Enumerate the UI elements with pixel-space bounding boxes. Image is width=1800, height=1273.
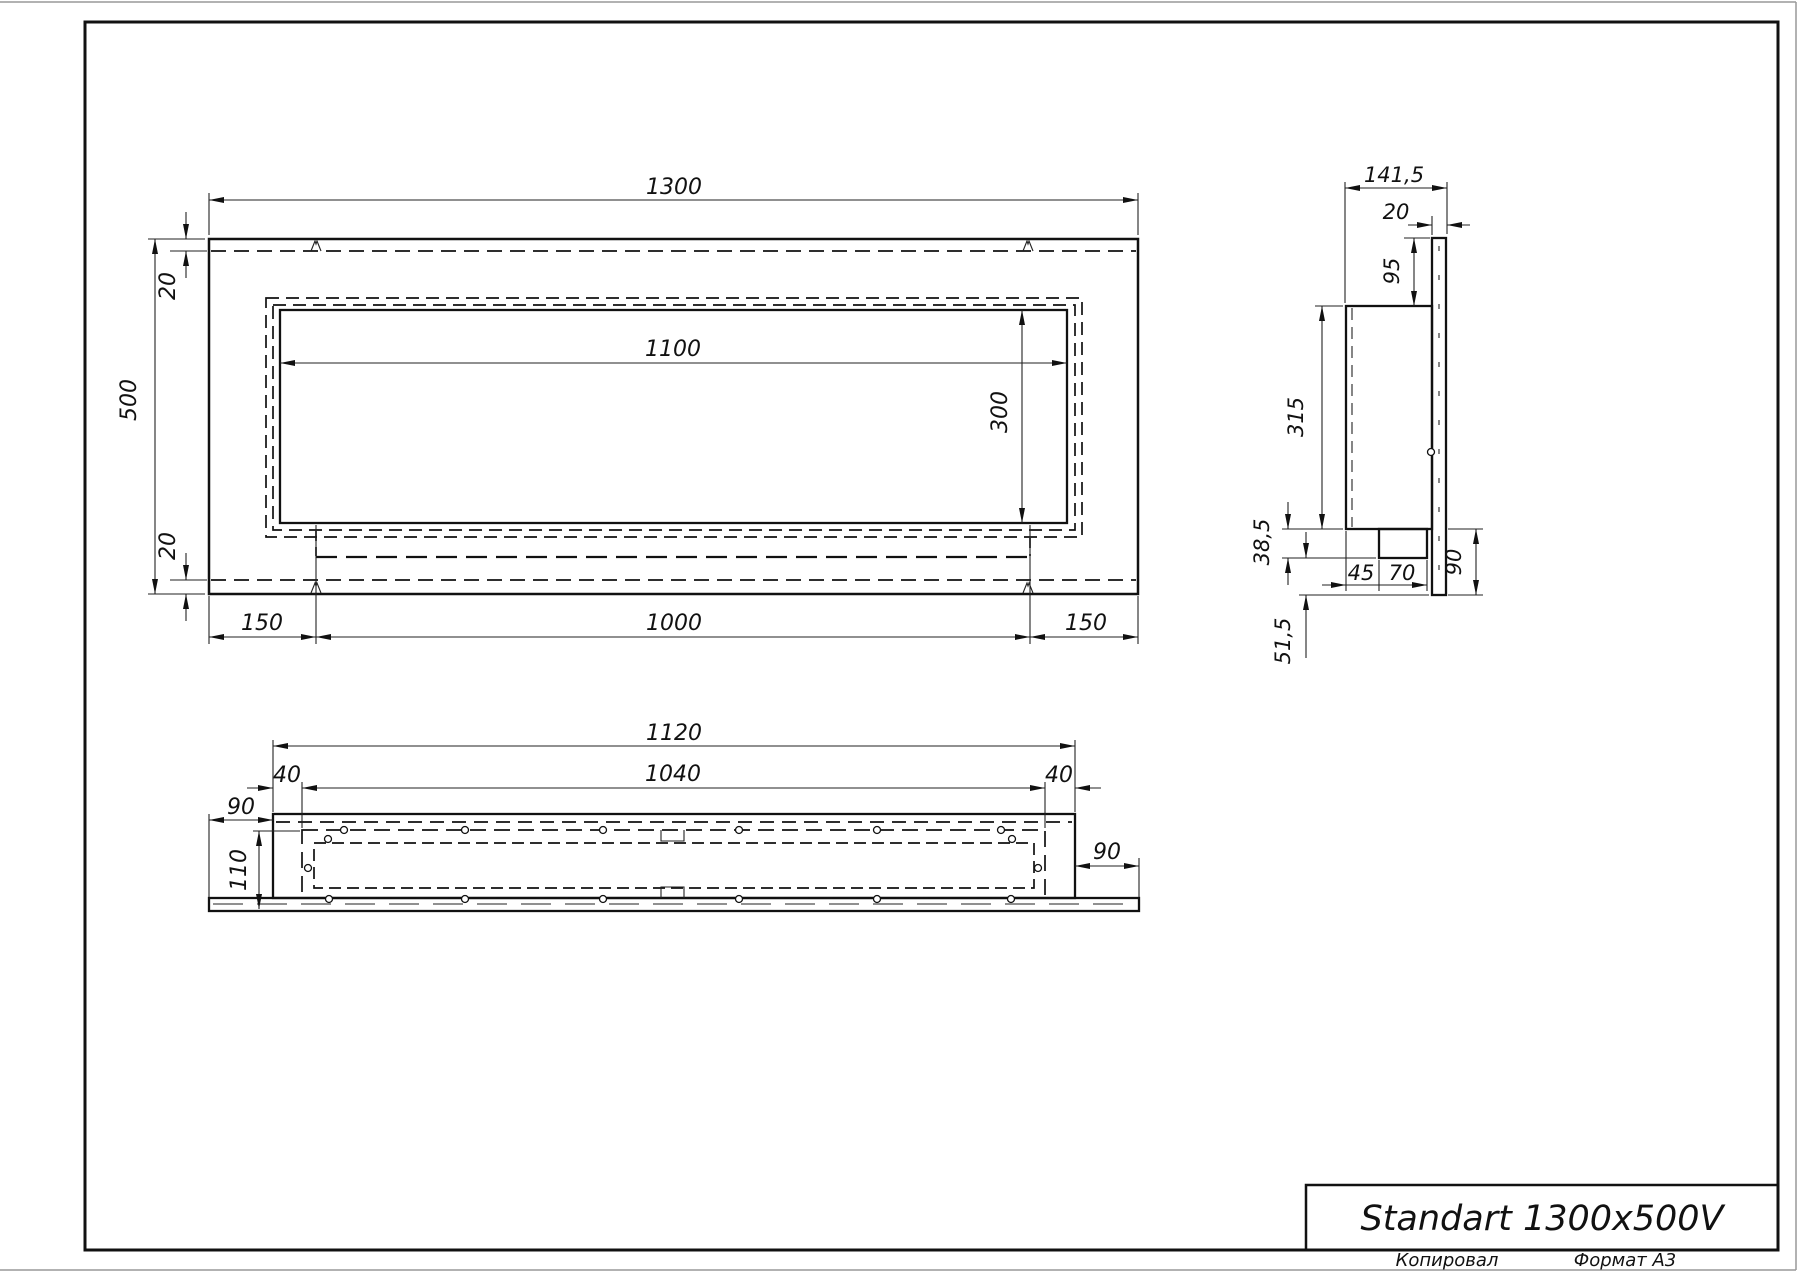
footer-annotations: Копировал Формат А3 xyxy=(1396,1250,1677,1271)
dim-bottom-body-width: 1120 xyxy=(646,721,702,746)
front-hidden-shell xyxy=(266,298,1082,537)
dim-bottom-inset-right: 40 xyxy=(1045,763,1073,788)
dim-front-border-top: 20 xyxy=(156,272,181,300)
dim-front-opening-width: 1100 xyxy=(645,337,701,362)
bottom-tray-inner xyxy=(314,843,1034,888)
dim-side-tray-drop: 38,5 xyxy=(1250,519,1274,566)
drawing-frame xyxy=(85,22,1778,1250)
dim-side-tray-depth: 70 xyxy=(1389,561,1416,585)
dim-bottom-inset-left: 40 xyxy=(273,763,301,788)
copied-label: Копировал xyxy=(1396,1250,1499,1271)
dim-side-flange-bottom-offset: 90 xyxy=(1442,549,1466,576)
bottom-notch-top xyxy=(661,830,684,841)
paper-edges xyxy=(0,2,1796,1270)
bottom-holes xyxy=(305,827,1042,903)
side-tray-outline xyxy=(1379,529,1427,558)
dim-front-overall-width: 1300 xyxy=(646,175,702,200)
side-hole xyxy=(1428,449,1435,456)
bottom-view: 1120 1040 40 40 90 90 110 xyxy=(209,721,1139,911)
side-body-outline xyxy=(1346,306,1432,529)
mark-icon xyxy=(311,241,321,251)
mark-icon xyxy=(1023,583,1033,593)
dim-front-bottom-left: 150 xyxy=(241,611,283,636)
dim-bottom-tray-width: 1040 xyxy=(645,762,701,787)
technical-drawing: 1300 500 20 20 1100 300 150 1000 150 xyxy=(0,0,1800,1273)
dim-front-opening-height: 300 xyxy=(988,391,1013,433)
dim-side-top-offset: 95 xyxy=(1380,258,1404,285)
dim-side-tray-offset: 45 xyxy=(1348,561,1375,585)
dim-side-flange-thickness: 20 xyxy=(1383,200,1410,224)
dim-side-overall-depth: 141,5 xyxy=(1364,163,1424,187)
dim-front-bottom-right: 150 xyxy=(1065,611,1107,636)
dim-front-bottom-center: 1000 xyxy=(646,611,702,636)
dim-side-bottom-drop: 51,5 xyxy=(1271,618,1295,665)
dim-bottom-flange-right: 90 xyxy=(1093,840,1121,865)
drawing-sheet: 1300 500 20 20 1100 300 150 1000 150 xyxy=(0,0,1800,1273)
dim-front-border-bottom: 20 xyxy=(156,532,181,560)
dim-front-overall-height: 500 xyxy=(117,379,142,421)
dim-side-body-height: 315 xyxy=(1284,397,1308,437)
bottom-body-outline xyxy=(273,814,1075,898)
drawing-title: Standart 1300x500V xyxy=(1360,1199,1725,1239)
side-flange-outline xyxy=(1432,238,1446,595)
title-block: Standart 1300x500V xyxy=(1306,1185,1778,1250)
dim-bottom-total-depth: 110 xyxy=(227,849,252,891)
mark-icon xyxy=(1023,241,1033,251)
format-label: Формат А3 xyxy=(1574,1250,1677,1271)
front-view: 1300 500 20 20 1100 300 150 1000 150 xyxy=(117,175,1138,644)
dim-bottom-flange-left: 90 xyxy=(227,795,255,820)
side-view: 141,5 20 95 315 38,5 51,5 90 xyxy=(1250,163,1483,664)
